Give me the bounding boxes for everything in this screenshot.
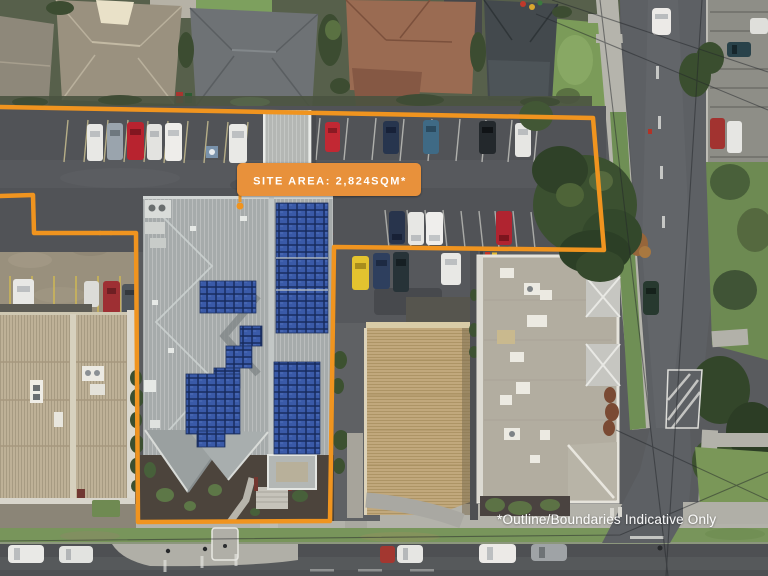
aerial-photo: SITE AREA: 2,824SQM* *Outline/Boundaries… <box>0 0 768 576</box>
site-area-badge: SITE AREA: 2,824SQM* <box>237 163 421 196</box>
east-neighbour-white <box>469 250 620 520</box>
site-building <box>140 196 334 522</box>
badge-pointer-dot <box>237 203 244 210</box>
site-area-label: SITE AREA: 2,824SQM* <box>253 176 407 188</box>
east-neighbour-tan <box>332 249 480 521</box>
aerial-photograph: SITE AREA: 2,824SQM* *Outline/Boundaries… <box>0 0 768 576</box>
boundary-disclaimer: *Outline/Boundaries Indicative Only <box>497 512 716 527</box>
top-houses <box>0 0 620 112</box>
